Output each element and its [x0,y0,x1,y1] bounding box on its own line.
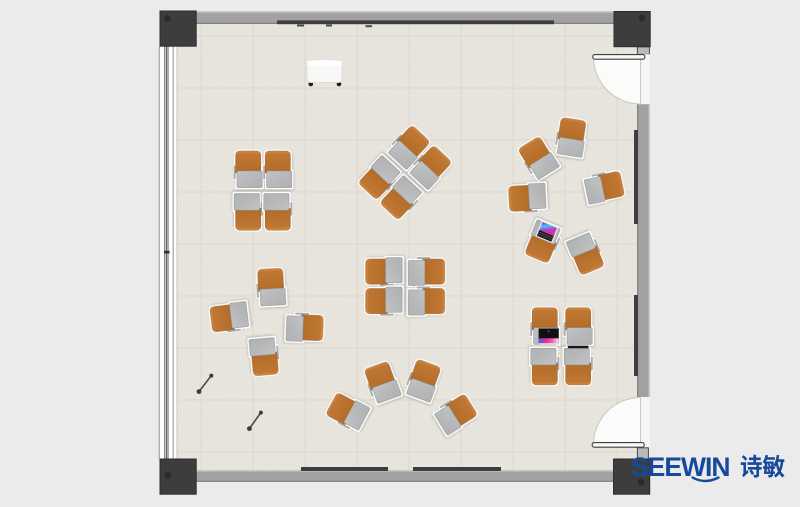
svg-text:SEEWIN: SEEWIN [631,452,730,482]
